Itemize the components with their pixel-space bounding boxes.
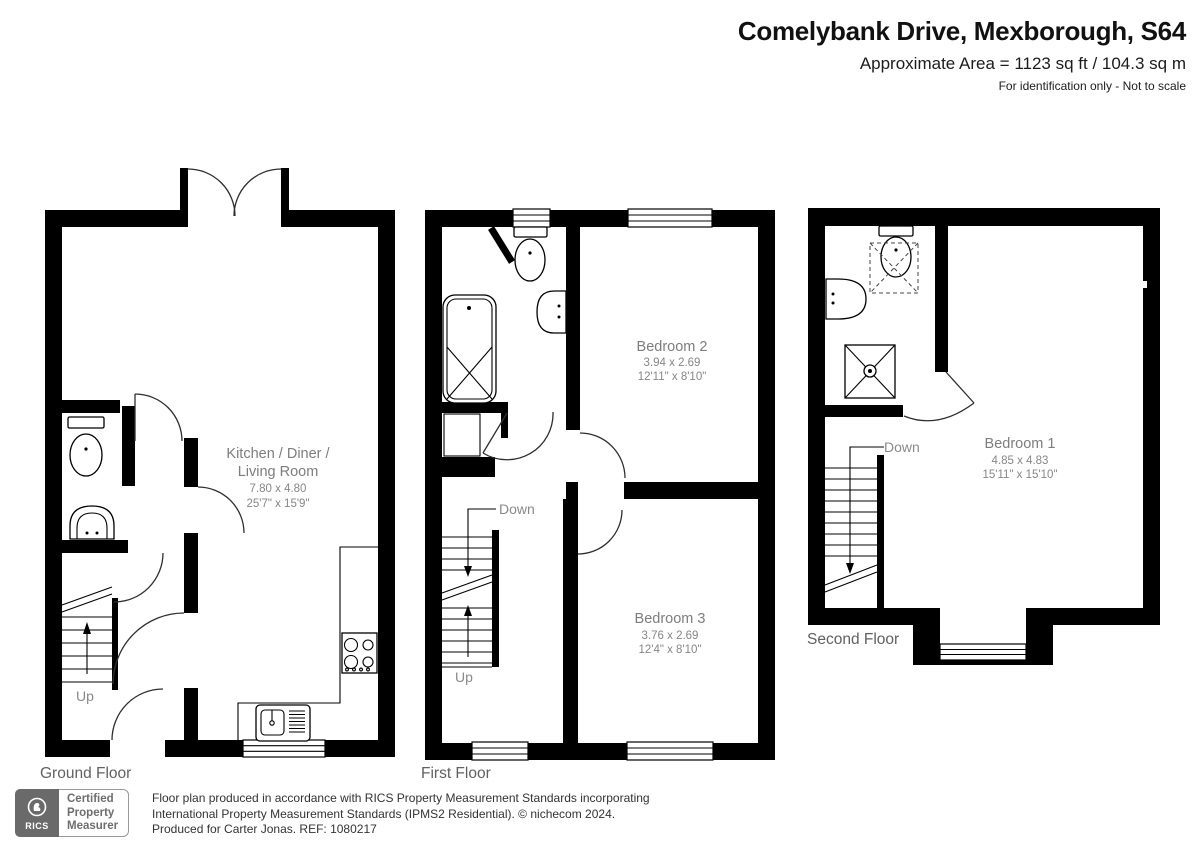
up-arrow-icon — [83, 622, 91, 634]
ground-floor-plan: Kitchen / Diner / Living Room 7.80 x 4.8… — [38, 150, 408, 790]
room-label: Living Room — [238, 464, 319, 480]
footer-line: International Property Measurement Stand… — [152, 807, 650, 823]
up-label: Up — [76, 688, 94, 704]
staircase-up — [62, 587, 112, 682]
room-dims-metric: 4.85 x 4.83 — [992, 455, 1049, 467]
room-label: Bedroom 2 — [637, 339, 708, 355]
up-arrow-icon — [464, 605, 472, 616]
ensuite-toilet-icon — [879, 226, 913, 277]
rics-logo: RICS — [15, 789, 59, 837]
badge-line: Certified — [67, 793, 118, 807]
second-floor-plan: Down Bedroom 1 4.85 x 4.83 15'11" x 15'1… — [796, 200, 1188, 675]
wall-joint — [1143, 281, 1147, 288]
room-label: Bedroom 1 — [985, 436, 1056, 452]
rics-badge: RICS Certified Property Measurer — [15, 789, 129, 837]
cupboard — [444, 414, 480, 456]
down-label: Down — [499, 501, 535, 517]
down-arrow-icon — [846, 563, 854, 574]
badge-line: Property — [67, 807, 118, 821]
kitchen-window — [243, 740, 325, 757]
down-arrow-icon — [464, 566, 472, 577]
footer-disclaimer: Floor plan produced in accordance with R… — [152, 791, 650, 838]
footer-line: Produced for Carter Jonas. REF: 1080217 — [152, 822, 650, 838]
floorplan-page: Comelybank Drive, Mexborough, S64 Approx… — [0, 0, 1200, 850]
floor-label: Second Floor — [807, 631, 899, 648]
approximate-area: Approximate Area = 1123 sq ft / 104.3 sq… — [738, 54, 1186, 74]
bathroom-toilet-icon — [514, 227, 547, 281]
rics-lion-icon — [25, 796, 49, 820]
down-label: Down — [884, 439, 920, 455]
french-doors-icon — [180, 168, 289, 227]
first-floor-plan: Down Up Bedroom 2 3.94 x 2.69 12'11" x 8… — [416, 200, 780, 790]
staircase-down — [825, 447, 884, 592]
page-title: Comelybank Drive, Mexborough, S64 — [738, 16, 1186, 47]
room-dims-metric: 7.80 x 4.80 — [250, 483, 307, 495]
floor-label: Ground Floor — [40, 765, 131, 782]
badge-text: Certified Property Measurer — [59, 789, 129, 837]
room-dims-metric: 3.76 x 2.69 — [642, 630, 699, 642]
ensuite-door — [904, 372, 974, 421]
room-dims-imperial: 15'11" x 15'10" — [982, 469, 1057, 481]
up-label: Up — [455, 669, 473, 685]
bathtub-icon — [443, 295, 496, 403]
room-dims-metric: 3.94 x 2.69 — [644, 357, 701, 369]
hob-icon — [342, 633, 377, 673]
exterior-walls — [45, 210, 395, 757]
badge-line: Measurer — [67, 820, 118, 834]
ensuite-sink-icon — [826, 279, 866, 319]
room-dims-imperial: 25'7" x 15'9" — [246, 498, 309, 510]
room-label: Kitchen / Diner / — [226, 446, 330, 462]
rics-text: RICS — [25, 821, 49, 831]
title-block: Comelybank Drive, Mexborough, S64 Approx… — [738, 16, 1186, 93]
wc-toilet-icon — [68, 417, 104, 476]
room-label: Bedroom 3 — [635, 611, 706, 627]
room-dims-imperial: 12'4" x 8'10" — [638, 644, 701, 656]
bathroom-sink-icon — [537, 291, 566, 333]
staircase-updown — [442, 509, 496, 667]
dormer-window — [913, 608, 1053, 665]
room-dims-imperial: 12'11" x 8'10" — [638, 371, 707, 383]
shower-tray-icon — [845, 345, 895, 398]
wc-sink-icon — [70, 506, 114, 539]
footer-line: Floor plan produced in accordance with R… — [152, 791, 650, 807]
disclaimer: For identification only - Not to scale — [738, 79, 1186, 93]
floor-label: First Floor — [421, 765, 491, 782]
sink-unit-icon — [256, 705, 310, 741]
